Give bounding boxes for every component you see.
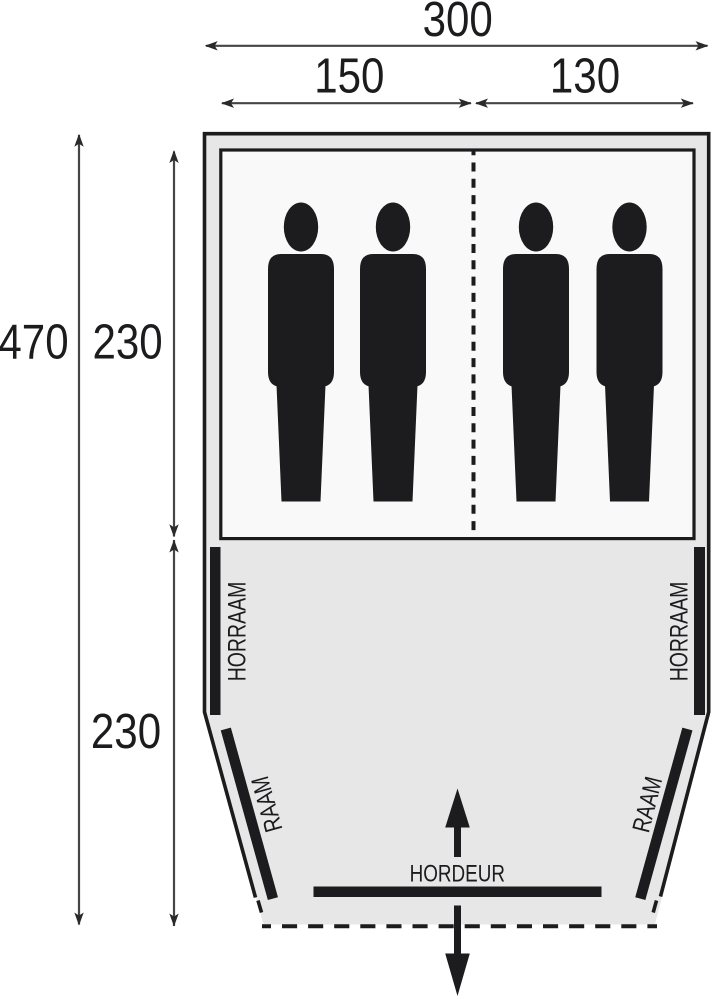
svg-text:HORRAAM: HORRAAM <box>665 582 693 682</box>
svg-text:470: 470 <box>0 313 69 369</box>
svg-text:230: 230 <box>93 313 163 369</box>
svg-text:150: 150 <box>314 47 384 103</box>
svg-text:HORRAAM: HORRAAM <box>223 582 251 682</box>
svg-text:HORDEUR: HORDEUR <box>410 859 505 887</box>
svg-text:300: 300 <box>423 0 493 47</box>
svg-text:230: 230 <box>91 703 161 759</box>
svg-text:130: 130 <box>550 47 620 103</box>
